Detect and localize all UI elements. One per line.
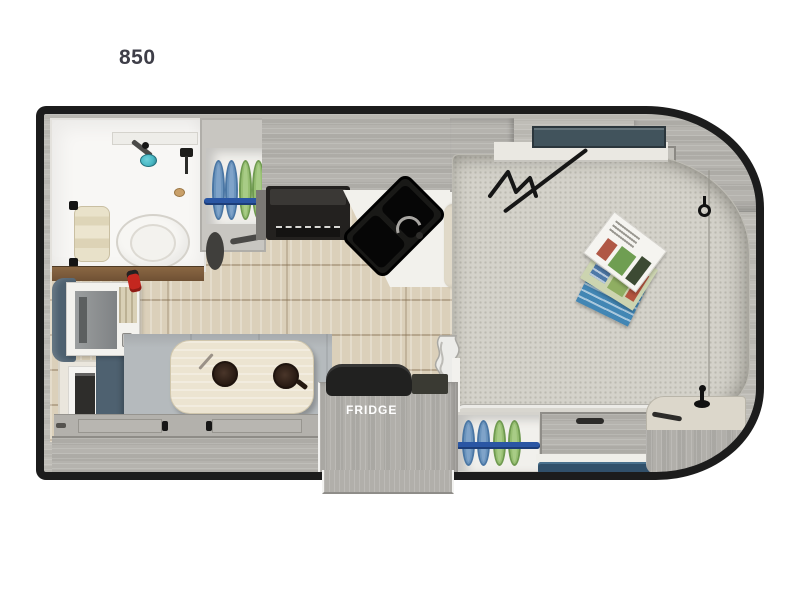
floorplan-canvas: 850 (0, 0, 800, 600)
model-label: 850 (119, 46, 156, 70)
fridge-exterior-vent (322, 470, 454, 494)
camper-shell (36, 106, 764, 480)
